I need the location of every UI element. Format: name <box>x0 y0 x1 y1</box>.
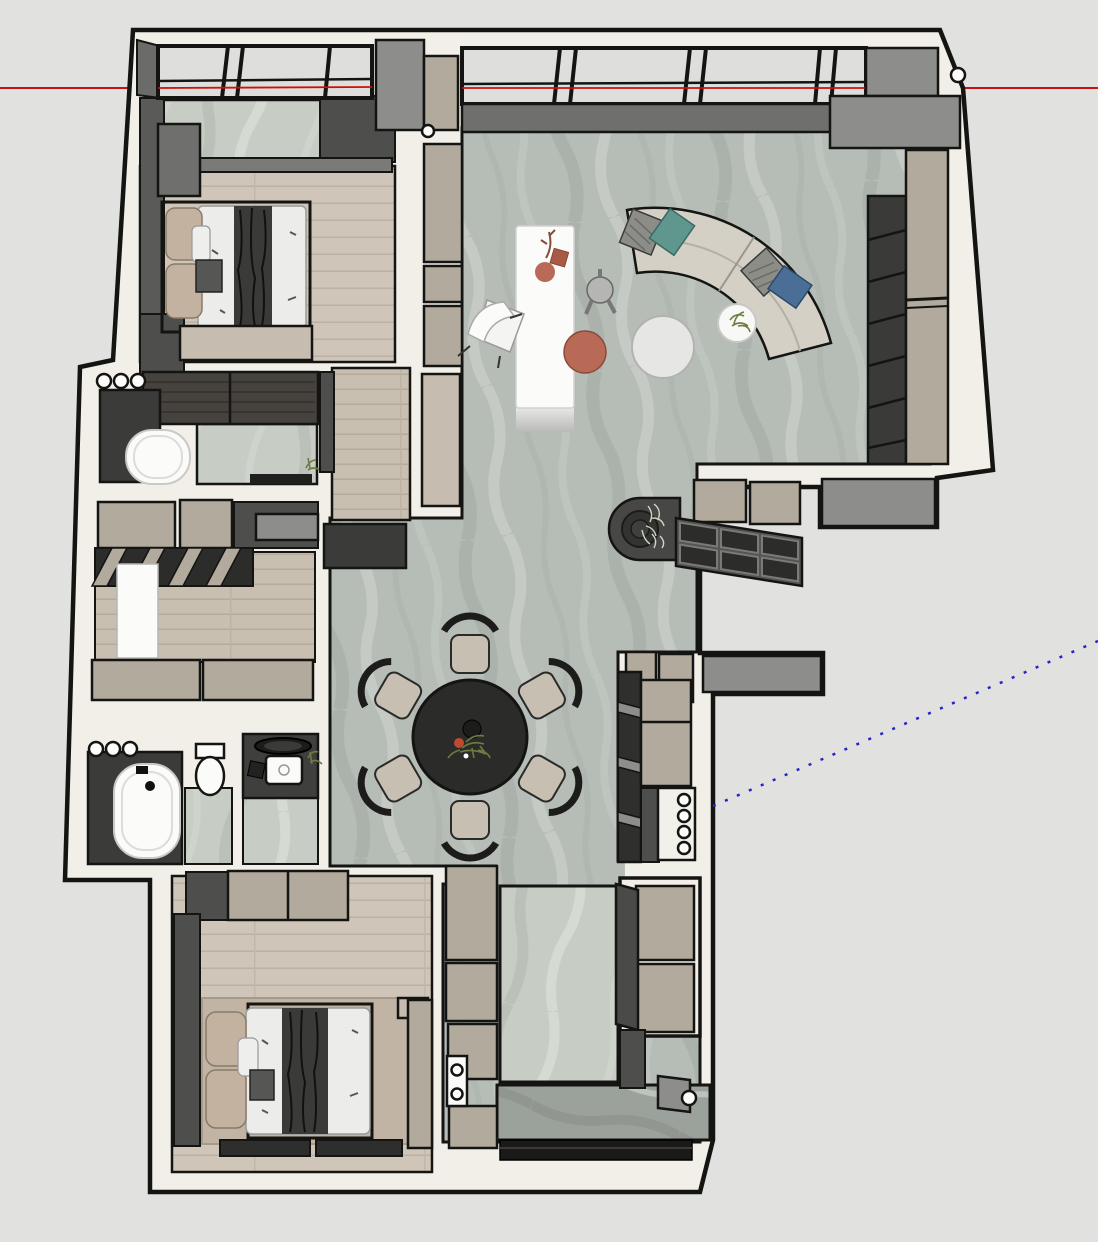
master-bed <box>162 202 310 332</box>
hallway-end-cabinet <box>324 524 406 568</box>
entry-wall-cap <box>620 1030 645 1088</box>
entry-cabinet-top <box>694 480 800 524</box>
door-threshold <box>500 1140 692 1160</box>
second-bedroom <box>172 871 432 1172</box>
powder-vanity <box>243 734 322 798</box>
tub-drain <box>145 781 155 791</box>
desk <box>117 564 158 658</box>
toilet-floor <box>185 788 232 864</box>
entry-right-cabinet <box>616 878 700 1036</box>
bedroom-window <box>158 46 372 98</box>
square-sink <box>266 756 302 784</box>
corner-wall <box>830 96 960 148</box>
living-window <box>462 48 866 104</box>
wall-dot-top-right <box>951 68 965 82</box>
hallway-wall-strip <box>320 372 334 472</box>
hinge-dot <box>422 125 434 137</box>
round-coffee-table <box>632 316 694 378</box>
bathroom-top <box>97 372 320 484</box>
throw <box>196 260 222 292</box>
throw <box>250 1070 274 1100</box>
door-hinge-dot <box>682 1091 696 1105</box>
round-bathtub <box>126 430 190 484</box>
terracotta-stool <box>564 331 606 373</box>
round-vase <box>535 262 555 282</box>
wall-cap-kitchen-stub <box>703 656 821 692</box>
window-pier <box>376 40 424 130</box>
wall-dots <box>89 742 137 756</box>
entry-console <box>609 498 680 560</box>
bathroom-bottom <box>88 734 322 864</box>
kitchen-island <box>516 226 574 432</box>
foot-bench <box>180 326 312 360</box>
wardrobe-dark <box>186 872 228 920</box>
entry-marble-panel <box>500 886 618 1082</box>
side-table-with-plant <box>718 304 756 342</box>
side-wall-band <box>174 914 200 1146</box>
walk-in-closet <box>92 500 318 700</box>
living-window-sill <box>462 104 870 132</box>
corner-wall-top <box>866 48 938 96</box>
nightstand <box>158 124 200 196</box>
open-door <box>616 884 638 1030</box>
pillow <box>206 1070 246 1128</box>
centerpiece-fruit <box>454 738 464 748</box>
kitchen-tall-cabinets <box>422 144 462 506</box>
cabinet-top <box>424 56 458 130</box>
model-viewport[interactable] <box>0 0 1098 1242</box>
wall-cap-right-stub <box>822 479 935 526</box>
shelf-band <box>92 548 253 586</box>
hallway-wood <box>332 368 410 520</box>
toilet <box>196 744 224 795</box>
powder-floor <box>243 796 318 864</box>
side-strip <box>408 1000 432 1148</box>
dining-entry-opening <box>497 862 625 888</box>
viewport-stage <box>0 0 1098 1242</box>
tub-faucet <box>136 766 148 774</box>
kitchen-run <box>618 652 695 862</box>
red-axis-through-glass <box>158 87 372 88</box>
shelf <box>250 474 312 484</box>
bed2 <box>206 1004 372 1138</box>
small-pillow <box>192 226 210 262</box>
wall-dots <box>97 374 145 388</box>
media-band <box>220 1140 402 1156</box>
bathtub <box>114 764 180 858</box>
